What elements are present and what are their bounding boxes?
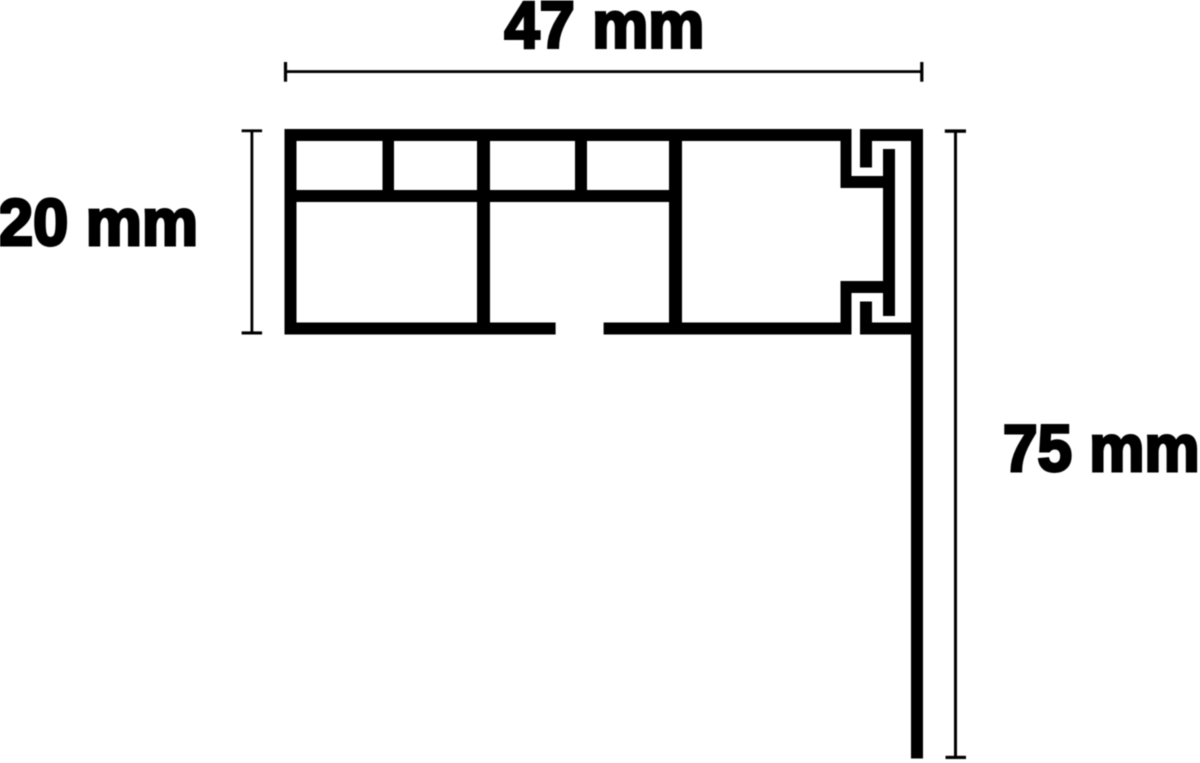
svg-text:75 mm: 75 mm (1003, 411, 1200, 485)
svg-text:20 mm: 20 mm (0, 186, 198, 260)
svg-text:47 mm: 47 mm (505, 0, 705, 62)
